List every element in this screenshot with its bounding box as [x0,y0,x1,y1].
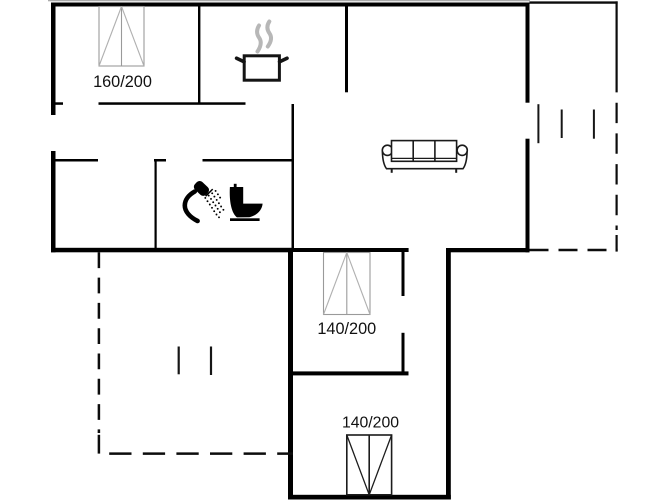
svg-text:140/200: 140/200 [342,414,399,431]
svg-text:160/200: 160/200 [93,73,152,91]
svg-text:140/200: 140/200 [317,320,376,338]
